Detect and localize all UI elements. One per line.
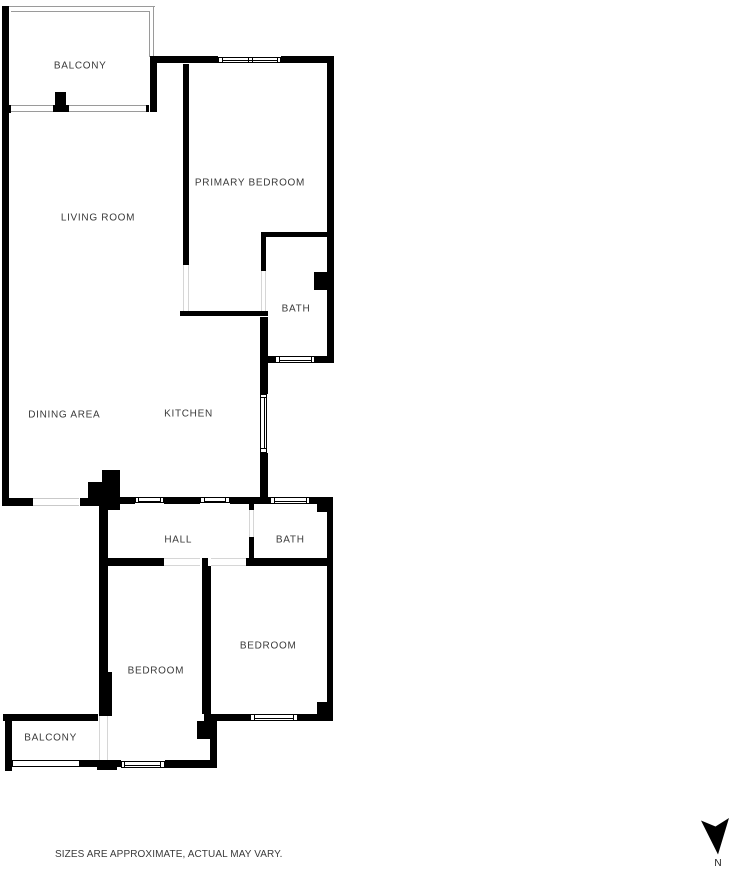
svg-text:N: N (714, 858, 721, 869)
